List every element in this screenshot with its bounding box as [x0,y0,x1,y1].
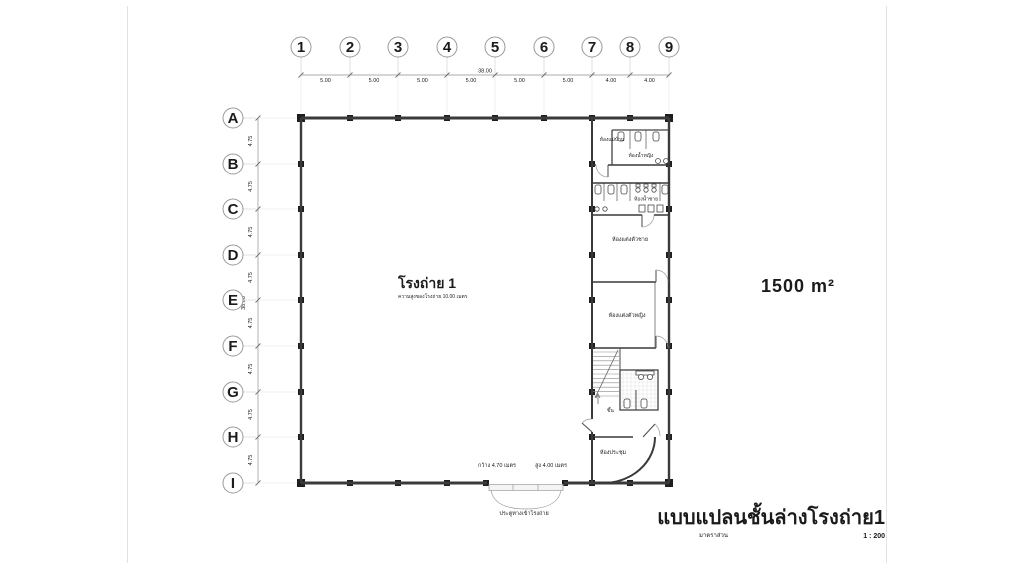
door-swing-hall-corridor [582,419,592,423]
grid-column-number: 4 [443,39,452,56]
sink-icon [603,207,607,211]
fixture-icon [648,205,654,212]
urinal-icon [644,188,648,192]
womens-toilet-label: ห้องน้ำหญิง [629,150,655,159]
sink-icon [656,159,661,164]
floor-plan-canvas: 38.00 38.00 1234567895.005.005.005.005.0… [0,0,1012,569]
entrance-height-label: สูง 4.00 เมตร [535,462,567,469]
toilet-icon [595,185,601,194]
grid-row-letter: B [228,156,239,173]
top-total-dimension: 38.00 [478,69,492,75]
left-segment-dimension: 4.75 [248,272,254,283]
entrance-name-label: ประตูทางเข้าโรงถ่าย [499,509,548,517]
building-walls [301,118,669,483]
urinal-icon [652,184,656,187]
maid-room-label: ห้องแม่บ้าน [600,136,625,143]
sink-icon [647,374,652,379]
top-segment-dimension: 5.00 [563,78,574,84]
sink-icon [664,159,669,164]
entrance-width-label: กว้าง 4.70 เมตร [478,462,516,469]
mens-dressing-label: ห้องแต่งตัวชาย [612,236,648,243]
entrance-door-sill [489,485,563,491]
door-swing-ab-room [596,165,608,177]
top-segment-dimension: 4.00 [606,78,617,84]
door-swing-dressing-men [656,270,668,282]
grid-column-number: 2 [346,39,354,56]
meeting-room-label: ห้องประชุม [600,449,627,456]
drawing-sheet: 38.00 38.00 1234567895.005.005.005.005.0… [0,0,1012,569]
top-segment-dimension: 5.00 [466,78,477,84]
title-block: แบบแปลนชั้นล่างโรงถ่าย1 มาตราส่วน 1 : 20… [657,502,885,540]
grid-row-letter: G [227,384,239,401]
fixture-icon [657,205,663,212]
stair-up-label: ขึ้น [607,405,614,414]
toilet-icon [641,399,647,408]
grid-row-letter: I [231,475,235,492]
sink-icon [638,374,643,379]
top-segment-dimension: 4.00 [644,78,655,84]
grid-row-letter: H [228,429,239,446]
mens-toilet-label: ห้องน้ำชาย [634,194,658,203]
grid-column-number: 3 [394,39,402,56]
top-segment-dimension: 5.00 [417,78,428,84]
grid-column-number: 5 [491,39,499,56]
grid-column-number: 6 [540,39,548,56]
toilet-icon [662,185,668,194]
hall-height-note: ความสูงของโรงถ่าย 10.00 เมตร [398,293,468,300]
toilet-icon [624,399,630,408]
urinal-icon [636,188,640,192]
generated-drawing-parts [297,114,673,487]
womens-dressing-label: ห้องแต่งตัวหญิง [608,312,645,319]
grid-column-number: 7 [588,39,596,56]
scale-caption: มาตราส่วน [699,532,728,539]
grid-row-letter: E [228,292,238,309]
drawing-title: แบบแปลนชั้นล่างโรงถ่าย1 [657,502,885,529]
left-segment-dimension: 4.75 [248,318,254,329]
door-leaf-meeting-room [643,424,655,437]
scale-value: 1 : 200 [863,533,885,540]
urinal-icon [652,188,656,192]
grid-row-letter: F [228,338,237,355]
left-segment-dimension: 4.75 [248,136,254,147]
left-segment-dimension: 4.75 [248,455,254,466]
door-swing-mens-toilet [642,215,654,227]
toilet-icon [653,132,659,141]
toilet-icon [621,185,627,194]
grid-row-letter: A [228,110,239,127]
left-segment-dimension: 4.75 [248,409,254,420]
curved-wall [603,437,655,483]
toilet-icon [608,185,614,194]
entrance-door-swing [491,490,561,509]
hall-name-label: โรงถ่าย 1 [397,274,456,291]
left-segment-dimension: 4.75 [248,181,254,192]
top-segment-dimension: 5.00 [369,78,380,84]
grid-column-number: 9 [665,39,673,56]
door-swing-meeting-room [655,424,660,436]
grid-row-letter: C [228,201,239,218]
top-segment-dimension: 5.00 [514,78,525,84]
area-label: 1500 m² [761,276,835,296]
left-segment-dimension: 4.75 [248,227,254,238]
row-grid: ABCDEFGHI4.754.754.754.754.754.754.754.7… [223,108,298,493]
toilet-icon [635,132,641,141]
top-segment-dimension: 5.00 [320,78,331,84]
fixture-icon [639,205,645,212]
urinal-icon [644,184,648,187]
left-segment-dimension: 4.75 [248,364,254,375]
doors [489,165,668,509]
sink-icon [595,207,599,211]
grid-row-letter: D [228,247,239,264]
door-leaf-hall-corridor [582,423,592,432]
grid-column-number: 1 [297,39,305,56]
grid-column-number: 8 [626,39,634,56]
urinal-icon [636,184,640,187]
